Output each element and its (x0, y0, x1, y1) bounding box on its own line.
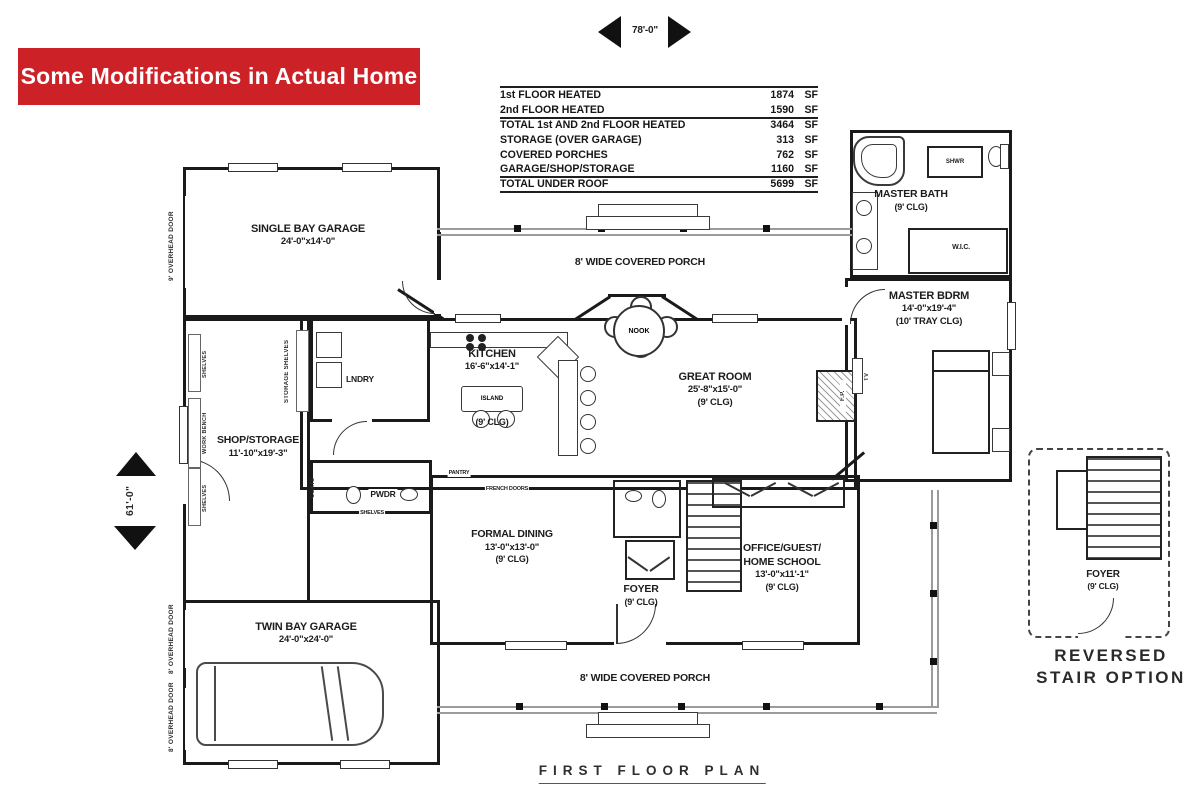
window (179, 406, 188, 464)
car (196, 662, 384, 746)
fireplace (816, 370, 856, 422)
room-label-reversed-foyer: FOYER (9' CLG) (1086, 568, 1119, 592)
porch-post (930, 522, 937, 529)
bar-stool (580, 366, 596, 382)
room-label-lndry: LNDRY (346, 374, 374, 385)
porch-post (930, 590, 937, 597)
row-label: COVERED PORCHES (500, 149, 752, 161)
sink (856, 200, 872, 216)
toilet-tank (1000, 144, 1009, 169)
porch-post (763, 703, 770, 710)
opening-shop-door (180, 458, 188, 504)
french-doors-label: FRENCH DOORS (485, 486, 529, 493)
room-name: OFFICE/GUEST/ (743, 542, 821, 556)
table-row: 2nd FLOOR HEATED1590SF (500, 103, 818, 118)
plan-title: FIRST FLOOR PLAN (539, 762, 766, 784)
overhead-door-label: 8' OVERHEAD DOOR (168, 682, 175, 752)
room-dims: 13'-0"x13'-0" (471, 542, 553, 554)
nook-label: NOOK (629, 328, 650, 335)
storage-shelves-unit (296, 330, 309, 412)
room-clg: (9' CLG) (471, 554, 553, 566)
shelves-label: SHELVES (202, 336, 208, 392)
row-value: 3464 (752, 119, 794, 131)
table-row: STORAGE (OVER GARAGE)313SF (500, 132, 818, 147)
reversed-caption-line1: REVERSED (1036, 645, 1186, 667)
porch-post (763, 225, 770, 232)
room-clg: (9' CLG) (623, 597, 658, 609)
room-name: MASTER BDRM (889, 289, 969, 303)
overhead-door-leaf (183, 688, 185, 750)
room-name: TWIN BAY GARAGE (255, 620, 357, 634)
kitchen-island: ISLAND (461, 386, 523, 412)
sink (625, 490, 642, 502)
office-closet (712, 478, 845, 508)
room-label-formal-dining: FORMAL DINING 13'-0"x13'-0" (9' CLG) (471, 528, 553, 566)
table-rule (500, 191, 818, 193)
room-dims: 24'-0"x14'-0" (251, 236, 365, 248)
room-label-shop-storage: SHOP/STORAGE 11'-10"x19'-3" (217, 434, 299, 460)
porch-post (516, 703, 523, 710)
table-row: COVERED PORCHES762SF (500, 147, 818, 162)
bed (932, 350, 990, 454)
room-name: FORMAL DINING (471, 528, 553, 542)
work-bench-unit (188, 398, 201, 468)
pantry-label: PANTRY (448, 470, 471, 477)
row-value: 1874 (752, 89, 794, 101)
room-name: SHOP/STORAGE (217, 434, 299, 448)
window (228, 163, 278, 172)
reversed-caption: REVERSED STAIR OPTION (1036, 645, 1186, 689)
sink (400, 488, 418, 501)
room-label-pwdr: PWDR (368, 489, 397, 500)
porch-post (930, 658, 937, 665)
bar-stool (580, 438, 596, 454)
porch-steps-top (586, 216, 710, 230)
room-label-great-room: GREAT ROOM 25'-8"x15'-0" (9' CLG) (679, 370, 752, 409)
opening-garage-porch-door (434, 280, 442, 314)
room-clg: (9' CLG) (679, 397, 752, 409)
overhead-door-label: 9' OVERHEAD DOOR (168, 200, 175, 292)
room-clg: (9' CLG) (874, 202, 947, 214)
window (455, 314, 501, 323)
fireplace-label: F.P. (840, 380, 846, 412)
row-label: 1st FLOOR HEATED (500, 89, 752, 101)
toilet (652, 490, 666, 508)
room-name: KITCHEN (465, 347, 519, 361)
row-label: STORAGE (OVER GARAGE) (500, 134, 752, 146)
car-hood-line (337, 666, 349, 741)
room-dims: 14'-0"x19'-4" (889, 303, 969, 315)
dimension-arrow-up-icon (116, 452, 156, 476)
nook-table: NOOK (613, 305, 665, 357)
porch-edge-bottom (437, 706, 937, 708)
nightstand (992, 352, 1010, 376)
row-unit: SF (794, 119, 818, 131)
room-label-master-bath: MASTER BATH (9' CLG) (874, 188, 947, 213)
room-label-porch-bottom: 8' WIDE COVERED PORCH (580, 672, 710, 686)
wall-nook-bay-left (574, 295, 611, 320)
banner-text: Some Modifications in Actual Home (21, 63, 418, 90)
room-dims: 24'-0"x24'-0" (255, 634, 357, 646)
floor-plan-page: Some Modifications in Actual Home 78'-0"… (0, 0, 1200, 800)
car-rear-line (214, 666, 216, 741)
room-dims: 25'-8"x15'-0" (679, 384, 752, 396)
window (712, 314, 758, 323)
kitchen-bar (558, 360, 578, 456)
modifications-banner: Some Modifications in Actual Home (18, 48, 420, 105)
window (1007, 302, 1016, 350)
overhead-door-leaf (183, 610, 185, 668)
hall-bath (613, 480, 681, 538)
overhead-door-leaf (183, 196, 185, 288)
room-name: HOME SCHOOL (743, 556, 821, 570)
room-label-office: OFFICE/GUEST/ HOME SCHOOL 13'-0"x11'-1" … (743, 542, 821, 593)
porch-edge-top (437, 234, 857, 236)
porch-edge-right (937, 490, 939, 708)
dryer (316, 362, 342, 388)
range-burner (478, 334, 486, 342)
room-label-single-bay-garage: SINGLE BAY GARAGE 24'-0"x14'-0" (251, 222, 365, 249)
storage-shelves-label: STORAGE SHELVES (284, 328, 290, 414)
room-name: FOYER (1086, 568, 1119, 581)
table-row: 1st FLOOR HEATED1874SF (500, 88, 818, 103)
shelves-label: SHELVES (359, 510, 385, 517)
room-name: SINGLE BAY GARAGE (251, 222, 365, 236)
opening-master-door (842, 287, 850, 325)
overhead-door-label: 8' OVERHEAD DOOR (168, 604, 175, 674)
row-unit: SF (794, 149, 818, 161)
dimension-arrow-right-icon (668, 16, 691, 48)
wall-powder-hall (310, 460, 432, 514)
room-clg: (10' TRAY CLG) (889, 316, 969, 328)
room-label-porch-top: 8' WIDE COVERED PORCH (575, 256, 705, 270)
row-label: GARAGE/SHOP/STORAGE (500, 163, 752, 175)
sink (856, 238, 872, 254)
porch-steps-top (598, 204, 698, 217)
row-value: 5699 (752, 178, 794, 190)
window (228, 760, 278, 769)
room-dims: 16'-6"x14'-1" (465, 361, 519, 373)
row-unit: SF (794, 104, 818, 116)
porch-post (876, 703, 883, 710)
car-windshield (321, 666, 333, 741)
room-label-wic: W.I.C. (952, 243, 970, 252)
porch-post (514, 225, 521, 232)
row-label: 2nd FLOOR HEATED (500, 104, 752, 116)
work-bench-label: WORK BENCH (202, 398, 208, 468)
shelves-unit (188, 468, 201, 526)
window (342, 163, 392, 172)
row-label: TOTAL UNDER ROOF (500, 178, 752, 190)
row-unit: SF (794, 178, 818, 190)
window (505, 641, 567, 650)
row-label: TOTAL 1st AND 2nd FLOOR HEATED (500, 119, 752, 131)
porch-post (678, 703, 685, 710)
room-dims: 11'-10"x19'-3" (217, 448, 299, 460)
entry-door-leaf (616, 604, 618, 644)
coats-label: COATS (310, 468, 316, 508)
room-dims: 13'-0"x11'-1" (743, 569, 821, 581)
room-label-kitchen: KITCHEN 16'-6"x14'-1" (465, 347, 519, 374)
left-dimension-label: 61'-0" (124, 482, 136, 520)
table-row: TOTAL UNDER ROOF5699SF (500, 177, 818, 192)
shelves-unit (188, 334, 201, 392)
dimension-arrow-left-icon (598, 16, 621, 48)
porch-post (601, 703, 608, 710)
room-name: GREAT ROOM (679, 370, 752, 384)
row-value: 1160 (752, 163, 794, 175)
room-label-twin-bay-garage: TWIN BAY GARAGE 24'-0"x24'-0" (255, 620, 357, 647)
row-value: 762 (752, 149, 794, 161)
bar-stool (580, 390, 596, 406)
room-label-foyer: FOYER (9' CLG) (623, 583, 658, 608)
row-unit: SF (794, 163, 818, 175)
row-value: 1590 (752, 104, 794, 116)
window (340, 760, 390, 769)
room-name: MASTER BATH (874, 188, 947, 202)
room-clg: (9' CLG) (743, 582, 821, 594)
washer (316, 332, 342, 358)
reversed-closet (1056, 470, 1088, 530)
reversed-caption-line2: STAIR OPTION (1036, 667, 1186, 689)
bar-stool (580, 414, 596, 430)
table-row: GARAGE/SHOP/STORAGE1160SF (500, 162, 818, 177)
shower-label: SHWR (946, 159, 964, 165)
tv-label: TV (864, 364, 870, 390)
row-unit: SF (794, 134, 818, 146)
dimension-arrow-down-icon (114, 526, 156, 550)
table-row: TOTAL 1st AND 2nd FLOOR HEATED3464SF (500, 118, 818, 133)
row-unit: SF (794, 89, 818, 101)
room-name: FOYER (623, 583, 658, 597)
top-dimension-label: 78'-0" (632, 24, 658, 37)
room-label-kitchen-clg: (9' CLG) (475, 417, 508, 429)
porch-steps-bottom (586, 724, 710, 738)
table-rule (500, 176, 818, 178)
room-clg: (9' CLG) (1086, 581, 1119, 592)
shower: SHWR (927, 146, 983, 178)
row-value: 313 (752, 134, 794, 146)
window (742, 641, 804, 650)
nightstand (992, 428, 1010, 452)
shelves-label: SHELVES (202, 470, 208, 526)
table-rule (500, 117, 818, 119)
island-label: ISLAND (481, 396, 503, 402)
toilet (346, 486, 361, 504)
room-label-master-bdrm: MASTER BDRM 14'-0"x19'-4" (10' TRAY CLG) (889, 289, 969, 328)
range-burner (466, 334, 474, 342)
tv-niche (852, 358, 863, 394)
reversed-staircase (1086, 456, 1162, 560)
bed-pillow-line (932, 370, 990, 372)
